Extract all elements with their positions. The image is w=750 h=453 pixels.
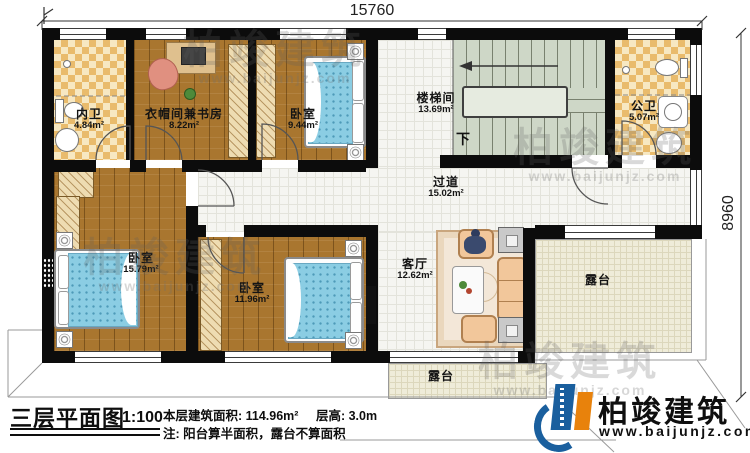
- room-area: 8.22m²: [145, 121, 223, 131]
- room-label-terrace-bottom: 露台: [428, 370, 454, 383]
- bed-mid-pillow: [350, 262, 362, 300]
- plan-floor-height: 层高: 3.0m: [316, 409, 377, 423]
- room-label-cloak-study: 衣帽间兼书房 8.22m²: [145, 108, 223, 131]
- closet-study-side: [228, 44, 250, 158]
- room-area: 4.84m²: [74, 121, 104, 131]
- brand-logo-building-orange: [574, 392, 593, 430]
- room-name: 客厅: [397, 258, 432, 271]
- nightstand: [56, 331, 73, 348]
- wall: [298, 160, 366, 172]
- window: [390, 351, 518, 363]
- window: [75, 351, 161, 363]
- wall: [42, 28, 54, 363]
- wall: [130, 160, 146, 172]
- wall: [186, 160, 198, 170]
- room-area: 15.79m²: [123, 265, 158, 275]
- wall: [366, 40, 378, 168]
- stair-down-label: 下: [456, 129, 470, 149]
- room-label-terrace-right: 露台: [585, 274, 611, 287]
- stair-side-landing: [562, 88, 605, 113]
- toilet-icon: [55, 99, 64, 123]
- room-name: 卧室: [123, 252, 158, 265]
- stair-upper-flight: [466, 40, 605, 88]
- vent-icon: [43, 258, 53, 288]
- armchair: [461, 315, 497, 343]
- bed-top-pillow: [352, 61, 364, 101]
- room-name: 卧室: [288, 108, 318, 121]
- room-label-bedroom-mid: 卧室 11.96m²: [235, 282, 270, 305]
- floor-plan-canvas: 内卫 4.84m² 衣帽间兼书房 8.22m² 卧室 9.44m² 楼梯间 13…: [0, 0, 750, 453]
- wall: [608, 155, 622, 168]
- room-label-living-room: 客厅 12.62m²: [397, 258, 432, 281]
- washer-drum-icon: [664, 103, 682, 121]
- window: [628, 28, 675, 40]
- toilet-icon: [655, 59, 679, 76]
- room-area: 12.62m²: [397, 271, 432, 281]
- plan-area-total: 本层建筑面积: 114.96m²: [163, 409, 298, 423]
- wall: [248, 40, 256, 160]
- room-area: 15.02m²: [428, 189, 463, 199]
- plan-info-line: 本层建筑面积: 114.96m² 层高: 3.0m: [163, 405, 377, 424]
- wall: [244, 225, 366, 237]
- side-table-top: [506, 235, 518, 247]
- room-area: 9.44m²: [288, 121, 318, 131]
- room-name: 卧室: [235, 282, 270, 295]
- wall: [656, 155, 690, 168]
- sink-icon: [55, 128, 79, 152]
- room-label-bedroom-left: 卧室 15.79m²: [123, 252, 158, 275]
- room-name: 内卫: [74, 108, 104, 121]
- toilet-icon: [680, 58, 688, 78]
- wall: [126, 40, 134, 160]
- closet-bedroom-left-top: [58, 170, 94, 198]
- room-label-corridor: 过道 15.02m²: [428, 176, 463, 199]
- window: [565, 225, 655, 239]
- side-table-top: [506, 325, 518, 337]
- window: [280, 28, 346, 40]
- room-area: 13.69m²: [416, 105, 455, 115]
- nightstand: [347, 43, 364, 60]
- bed-left-pillow: [58, 255, 69, 289]
- closet-bedroom-top: [256, 44, 276, 158]
- plant-icon: [184, 88, 196, 100]
- floor-terrace-bottom: [388, 363, 547, 399]
- window: [690, 170, 702, 225]
- wall: [54, 160, 96, 172]
- room-name: 过道: [428, 176, 463, 189]
- wall: [198, 225, 206, 237]
- tv-icon: [366, 286, 376, 324]
- window: [418, 28, 446, 40]
- floor-terrace-right: [535, 239, 692, 353]
- flowers-icon: [459, 281, 467, 289]
- title-underline: [10, 428, 160, 436]
- plan-scale: 1:100: [122, 409, 163, 427]
- dimension-top: 15760: [350, 2, 395, 20]
- wall: [523, 228, 535, 351]
- stair-lower-flight: [466, 113, 605, 155]
- person-icon: [464, 236, 486, 254]
- dimension-right: 8960: [720, 183, 738, 243]
- room-label-public-bath: 公卫 5.07m²: [629, 100, 659, 123]
- room-label-neiwei: 内卫 4.84m²: [74, 108, 104, 131]
- wall: [440, 155, 572, 168]
- stair-center-rail: [462, 86, 568, 118]
- window: [146, 28, 186, 40]
- room-name: 楼梯间: [416, 92, 455, 105]
- monitor-icon: [181, 47, 206, 65]
- wall: [42, 28, 702, 40]
- wall: [186, 206, 198, 363]
- window: [225, 351, 331, 363]
- flowers-icon: [466, 288, 472, 294]
- room-area: 11.96m²: [235, 295, 270, 305]
- room-label-stairwell: 楼梯间 13.69m²: [416, 92, 455, 115]
- brand-logo-windows: [560, 388, 564, 426]
- nightstand: [345, 240, 362, 257]
- closet-bedroom-mid: [200, 239, 222, 351]
- window: [690, 45, 702, 95]
- room-name: 衣帽间兼书房: [145, 108, 223, 121]
- plan-note: 注: 阳台算半面积，露台不算面积: [163, 423, 346, 442]
- nightstand: [347, 144, 364, 161]
- room-name: 露台: [428, 370, 454, 383]
- window: [60, 28, 106, 40]
- bed-top-pillow: [352, 103, 364, 143]
- room-area: 5.07m²: [629, 113, 659, 123]
- room-name: 公卫: [629, 100, 659, 113]
- bed-left-pillow: [58, 291, 69, 325]
- room-name: 露台: [585, 274, 611, 287]
- sink-icon: [656, 132, 682, 154]
- nightstand: [56, 232, 73, 249]
- faucet-icon: [622, 66, 630, 74]
- nightstand: [345, 332, 362, 349]
- wall: [605, 40, 615, 155]
- room-label-bedroom-top: 卧室 9.44m²: [288, 108, 318, 131]
- brand-website: www.baijunjz.com: [599, 423, 750, 439]
- faucet-icon: [63, 60, 71, 68]
